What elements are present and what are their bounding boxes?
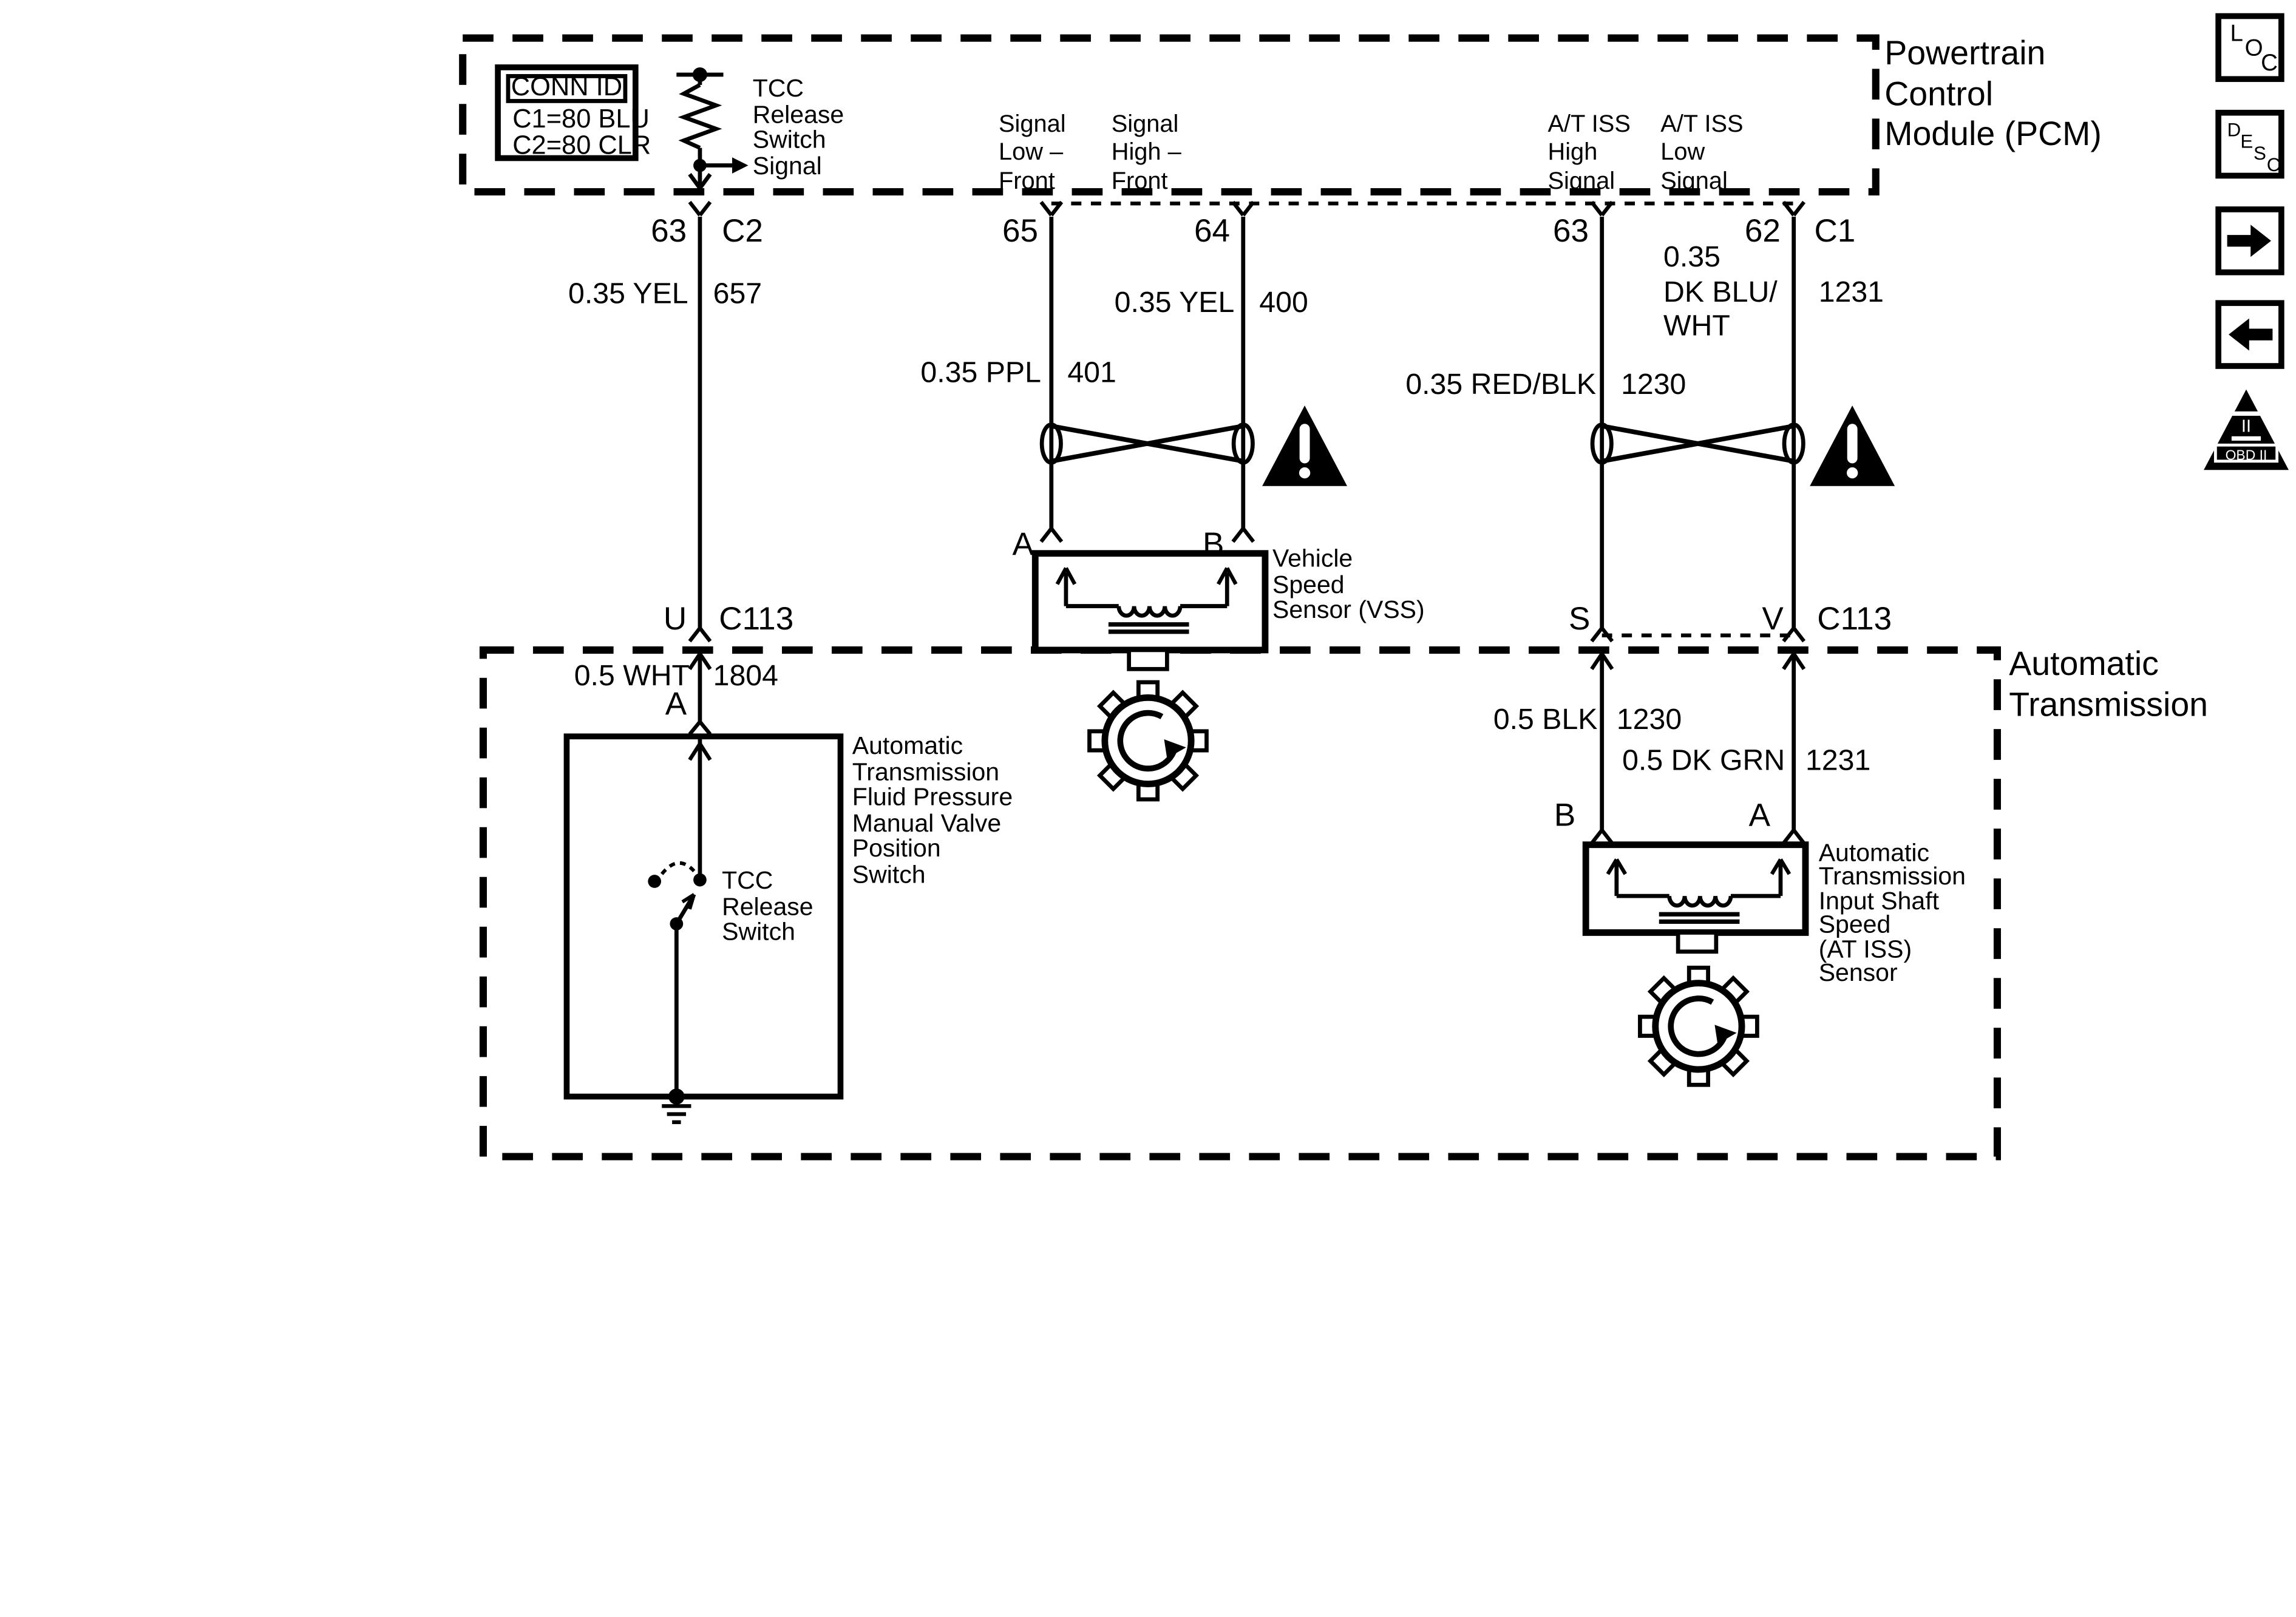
- wire-label-yel657: 0.35 YEL: [483, 278, 688, 310]
- iss-pin-a: A: [1712, 798, 1770, 832]
- obd2-badge: OBD II: [2214, 444, 2278, 463]
- c113-left-label: C113: [719, 602, 793, 635]
- tcc-signal-label: TCC Release Switch Signal: [753, 76, 844, 179]
- wiring-diagram: CONN ID C1=80 BLU C2=80 CLR TCC Release …: [0, 0, 2296, 1616]
- desc-letter: C: [2267, 155, 2281, 174]
- switch-open-contact-dot: [648, 875, 661, 888]
- resistor-icon: [684, 85, 716, 148]
- iss-pin-b: B: [1517, 798, 1575, 832]
- reluctor-gear-icon: [1640, 968, 1757, 1085]
- signal-low-front-label: Signal Low – Front: [999, 111, 1066, 196]
- loc-letter: L: [2230, 24, 2243, 47]
- c113-trans-pin-a: A: [599, 686, 687, 720]
- conn-id-row-c2: C2=80 CLR: [512, 131, 651, 160]
- desc-letter: S: [2254, 143, 2266, 162]
- circuit-1231-at: 1231: [1805, 745, 1870, 778]
- warning-triangle-icon: [1810, 405, 1895, 486]
- iss-sensor-label: Automatic Transmission Input Shaft Speed…: [1819, 842, 1966, 986]
- warning-triangle-icon: [1262, 405, 1347, 486]
- junction-dot: [693, 159, 707, 172]
- wire-label-blk1230: 0.5 BLK: [1393, 704, 1598, 736]
- reluctor-gear-icon: [1090, 682, 1207, 799]
- loc-letter: C: [2261, 53, 2278, 76]
- vss-pin-b: B: [1166, 527, 1224, 560]
- vss-label: Vehicle Speed Sensor (VSS): [1272, 546, 1425, 623]
- circuit-1230: 1230: [1621, 369, 1686, 401]
- loc-letter: O: [2245, 38, 2263, 62]
- vss-component: [1035, 554, 1265, 670]
- conn-id-header: CONN ID: [509, 72, 623, 101]
- forward-button[interactable]: [2215, 206, 2284, 275]
- circuit-1230-at: 1230: [1617, 704, 1682, 736]
- switch-pivot-dot: [670, 917, 683, 931]
- circuit-1231: 1231: [1819, 277, 1884, 309]
- at-iss-low-signal-label: A/T ISS Low Signal: [1660, 111, 1743, 196]
- transmission-title: Automatic Transmission: [2009, 644, 2208, 725]
- twisted-pair-icon: [1592, 424, 1803, 463]
- fpmvps-label: Automatic Transmission Fluid Pressure Ma…: [852, 733, 1013, 888]
- pcm-title: Powertrain Control Module (PCM): [1884, 33, 2102, 154]
- switch-contact-dot: [693, 873, 707, 887]
- wire-label-dkgrn1231: 0.5 DK GRN: [1550, 745, 1785, 778]
- conn-id-row-c1: C1=80 BLU: [512, 104, 650, 133]
- circuit-401: 401: [1067, 358, 1116, 390]
- loc-button[interactable]: L O C: [2215, 13, 2284, 82]
- at-iss-high-signal-label: A/T ISS High Signal: [1547, 111, 1630, 196]
- c113-pin-u: U: [599, 602, 687, 635]
- desc-letter: D: [2227, 120, 2241, 139]
- desc-button[interactable]: D E S C: [2215, 110, 2284, 178]
- signal-high-front-label: Signal High – Front: [1112, 111, 1181, 196]
- circuit-400: 400: [1259, 287, 1308, 319]
- connector-c1: C1: [1814, 214, 1855, 247]
- back-button[interactable]: [2215, 300, 2284, 368]
- wire-label-redblk1230: 0.35 RED/BLK: [1362, 369, 1596, 401]
- desc-letter: E: [2240, 132, 2253, 151]
- wire-label-yel400: 0.35 YEL: [1030, 287, 1235, 319]
- tcc-switch-label: TCC Release Switch: [722, 868, 813, 945]
- connector-c2: C2: [722, 214, 763, 247]
- c113-pin-s: S: [1503, 602, 1591, 635]
- iss-component: [1586, 845, 1805, 952]
- c113-pin-v: V: [1696, 602, 1784, 635]
- ground-junction-dot: [668, 1088, 685, 1105]
- c113-right-label: C113: [1817, 602, 1892, 635]
- junction-dot: [693, 67, 707, 82]
- vss-pin-a: A: [975, 527, 1033, 560]
- pin-63: 63: [1501, 214, 1589, 247]
- signal-arrow-icon: [732, 157, 749, 174]
- pin-65: 65: [950, 214, 1038, 247]
- wire-label-dkblu1231: 0.35 DK BLU/ WHT: [1663, 242, 1778, 345]
- pin-64: 64: [1142, 214, 1230, 247]
- circuit-657: 657: [713, 278, 763, 310]
- pin-63-c2: 63: [599, 214, 687, 247]
- obd2-numeral: II: [2232, 412, 2261, 441]
- wire-label-ppl401: 0.35 PPL: [836, 358, 1041, 390]
- twisted-pair-icon: [1042, 424, 1252, 463]
- circuit-1804: 1804: [713, 660, 778, 693]
